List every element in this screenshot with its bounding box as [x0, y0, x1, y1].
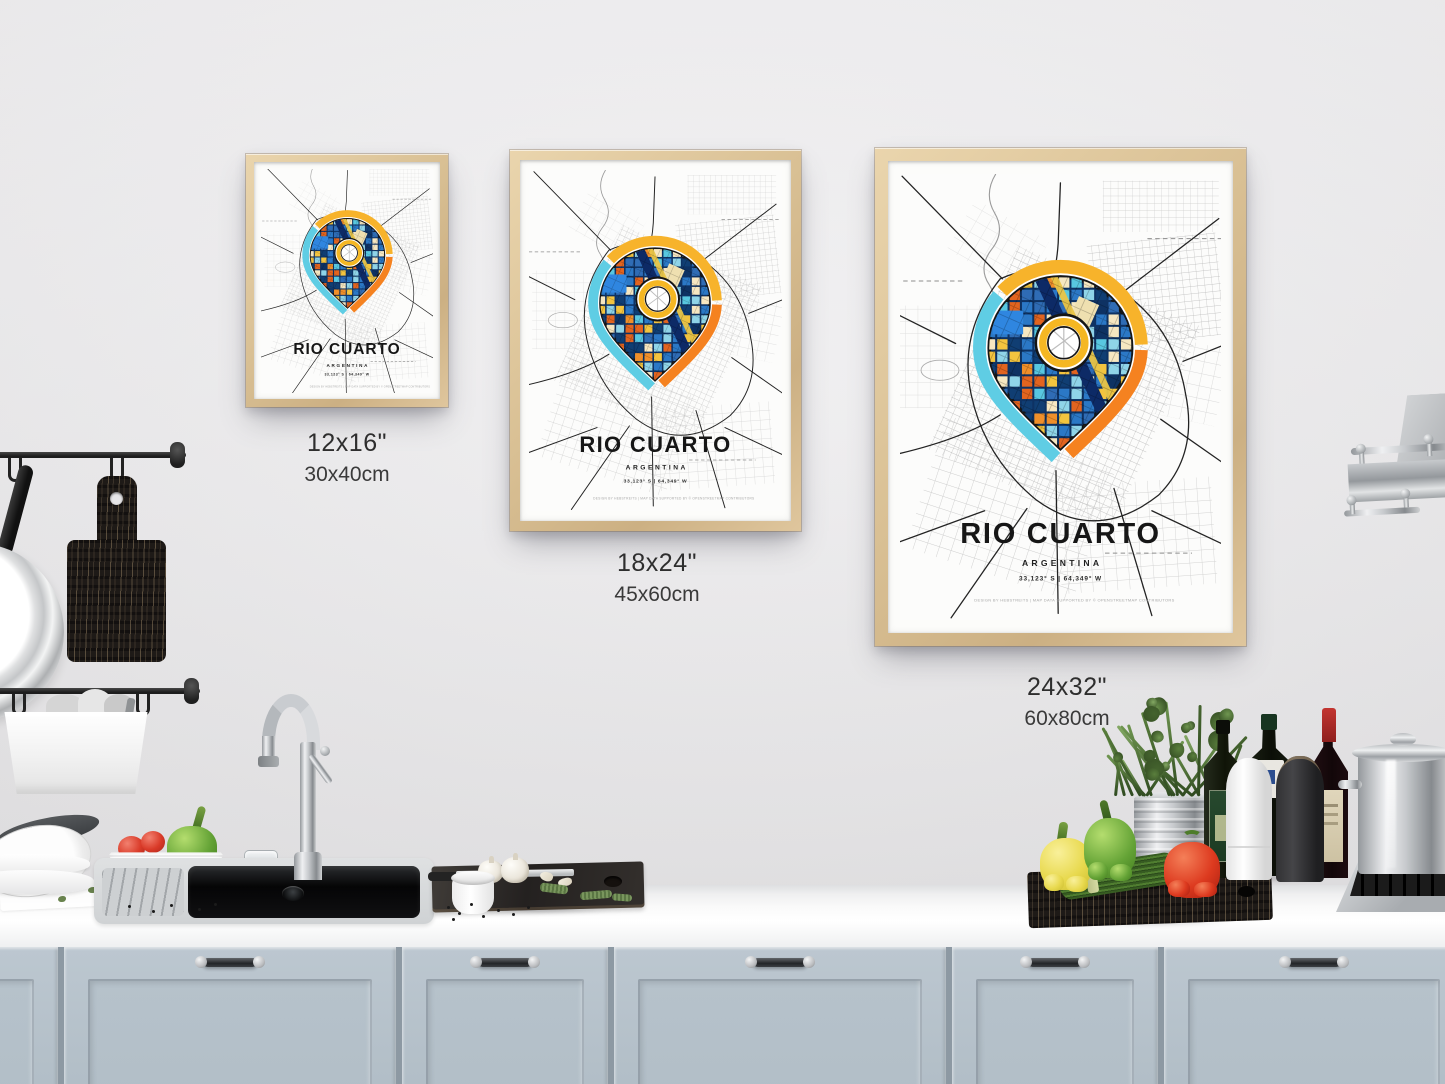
poster-paper: RIO CUARTO ARGENTINA 33,123° S | 64,349°…: [520, 160, 791, 521]
cabinet-handle: [1287, 958, 1341, 967]
kitchen-product-mockup: RIO CUARTO ARGENTINA 33,123° S | 64,349°…: [0, 0, 1445, 1084]
pot-lid-knob: [1390, 733, 1416, 746]
poster-credit: DESIGN BY HEBSTREITS | MAP DATA SUPPORTE…: [974, 598, 1147, 603]
poster-title: RIO CUARTO: [888, 520, 1233, 549]
size-cm: 45x60cm: [547, 583, 767, 607]
shelf-rail-ball: [1346, 495, 1357, 506]
pepper-lobe: [1110, 864, 1132, 881]
cabinet-door-panel: [638, 979, 922, 1084]
poster-coordinates: 33,123° S | 64,349° W: [571, 478, 739, 484]
peppercorn: [527, 906, 530, 909]
peppercorn: [170, 904, 173, 907]
street-grid-patch: [533, 271, 596, 349]
poster-frame-12x16: RIO CUARTO ARGENTINA 33,123° S | 64,349°…: [246, 154, 448, 407]
cabinet-door: [0, 947, 58, 1084]
cabinet-handle: [203, 958, 257, 967]
street-grid-patch: [688, 175, 777, 214]
cutting-board-hole: [110, 492, 123, 505]
wine-capsule: [1322, 708, 1336, 742]
shelf-lower-rail: [1344, 507, 1420, 517]
pepper-lobe: [1088, 862, 1108, 880]
cabinet-door: [1164, 947, 1445, 1084]
thyme-sprig: [612, 893, 632, 901]
poster-text-block: RIO CUARTO ARGENTINA 33,123° S | 64,349°…: [520, 434, 791, 504]
poster-text-block: RIO CUARTO ARGENTINA 33,123° S | 64,349°…: [888, 520, 1233, 607]
size-inches: 12x16": [237, 429, 457, 458]
pepper-lobe: [1044, 874, 1064, 891]
peppercorn: [470, 903, 473, 906]
cabinet-handle: [478, 958, 532, 967]
pot-lid: [1352, 744, 1445, 762]
hanging-cutting-board-handle: [97, 476, 137, 546]
peppercorn: [152, 910, 155, 913]
rail-finial: [184, 678, 199, 704]
grinder-seam: [1228, 846, 1270, 848]
poster-frame-18x24: RIO CUARTO ARGENTINA 33,123° S | 64,349°…: [510, 150, 801, 531]
poster-paper: RIO CUARTO ARGENTINA 33,123° S | 64,349°…: [254, 162, 440, 399]
cabinet-door: [64, 947, 396, 1084]
cabinet-door-panel: [426, 979, 584, 1084]
rosemary-tuft: [1169, 743, 1186, 760]
utensil-rail: [0, 452, 186, 458]
bottle-cap: [1261, 714, 1277, 730]
peppercorn: [198, 908, 201, 911]
peppercorn: [128, 905, 131, 908]
cabinet-handle: [1028, 958, 1082, 967]
cabinet-door-panel: [1188, 979, 1440, 1084]
shelf-side-panel: [1388, 393, 1445, 466]
peppercorn: [512, 913, 515, 916]
salt-grinder: [1226, 758, 1272, 880]
street-grid-patch: [264, 233, 307, 286]
utensil-bucket: [0, 712, 152, 794]
cabinet-handle: [753, 958, 807, 967]
board-hole: [1238, 886, 1255, 897]
pot-highlight: [1386, 760, 1396, 868]
small-white-bowl: [452, 876, 494, 914]
pepper-grinder: [1276, 756, 1324, 882]
size-inches: 18x24": [547, 549, 767, 578]
faucet-lever-knob: [320, 746, 330, 756]
poster-subtitle: ARGENTINA: [561, 464, 751, 472]
sink-drainboard: [102, 868, 184, 916]
peppercorn: [458, 912, 461, 915]
rail-finial: [170, 442, 185, 468]
street-grid-patch: [1103, 181, 1219, 232]
peppercorn: [214, 903, 217, 906]
faucet-base: [294, 852, 322, 880]
sink-drain: [282, 886, 304, 901]
poster-paper: RIO CUARTO ARGENTINA 33,123° S | 64,349°…: [888, 161, 1233, 633]
street-grid-patch: [900, 306, 982, 409]
peppercorn: [452, 918, 455, 921]
poster-title: RIO CUARTO: [520, 434, 791, 456]
poster-coordinates: 33,123° S | 64,349° W: [943, 575, 1178, 582]
poster-subtitle: ARGENTINA: [294, 363, 400, 368]
pepper-lobe: [1194, 882, 1217, 897]
pepper-lobe: [1168, 880, 1190, 897]
wall-shelf: [1332, 393, 1445, 549]
bottle-cap: [1216, 720, 1230, 734]
peppercorn: [497, 909, 500, 912]
poster-credit: DESIGN BY HEBSTREITS | MAP DATA SUPPORTE…: [593, 497, 718, 500]
size-label-12x16: 12x16" 30x40cm: [237, 429, 457, 487]
cabinet-door: [614, 947, 946, 1084]
cabinet-row: [0, 947, 1445, 1084]
cabinet-door-panel: [88, 979, 372, 1084]
hanging-cutting-board: [67, 540, 166, 662]
cabinet-door-panel: [976, 979, 1134, 1084]
size-label-18x24: 18x24" 45x60cm: [547, 549, 767, 607]
poster-frame-24x32: RIO CUARTO ARGENTINA 33,123° S | 64,349°…: [875, 148, 1246, 646]
cabinet-door-panel: [0, 979, 34, 1084]
peppercorn: [482, 915, 485, 918]
shelf-band: [1348, 459, 1445, 503]
pepper-lobe: [1066, 876, 1088, 892]
board-hole: [604, 876, 622, 887]
poster-credit: DESIGN BY HEBSTREITS | MAP DATA SUPPORTE…: [310, 386, 384, 388]
size-cm: 30x40cm: [237, 463, 457, 487]
poster-title: RIO CUARTO: [254, 342, 440, 358]
street-grid-patch: [369, 169, 429, 196]
cabinet-door: [402, 947, 608, 1084]
poster-coordinates: 33,123° S | 64,349° W: [301, 373, 394, 377]
poster-subtitle: ARGENTINA: [926, 559, 1195, 568]
tomato: [141, 831, 165, 853]
garlic-bulb: [501, 857, 529, 883]
cabinet-door: [952, 947, 1158, 1084]
poster-text-block: RIO CUARTO ARGENTINA 33,123° S | 64,349°…: [254, 342, 440, 392]
peppercorn: [447, 906, 450, 909]
faucet-nozzle: [258, 756, 279, 767]
stock-pot: [1358, 754, 1445, 874]
pot-handle: [1338, 780, 1362, 789]
